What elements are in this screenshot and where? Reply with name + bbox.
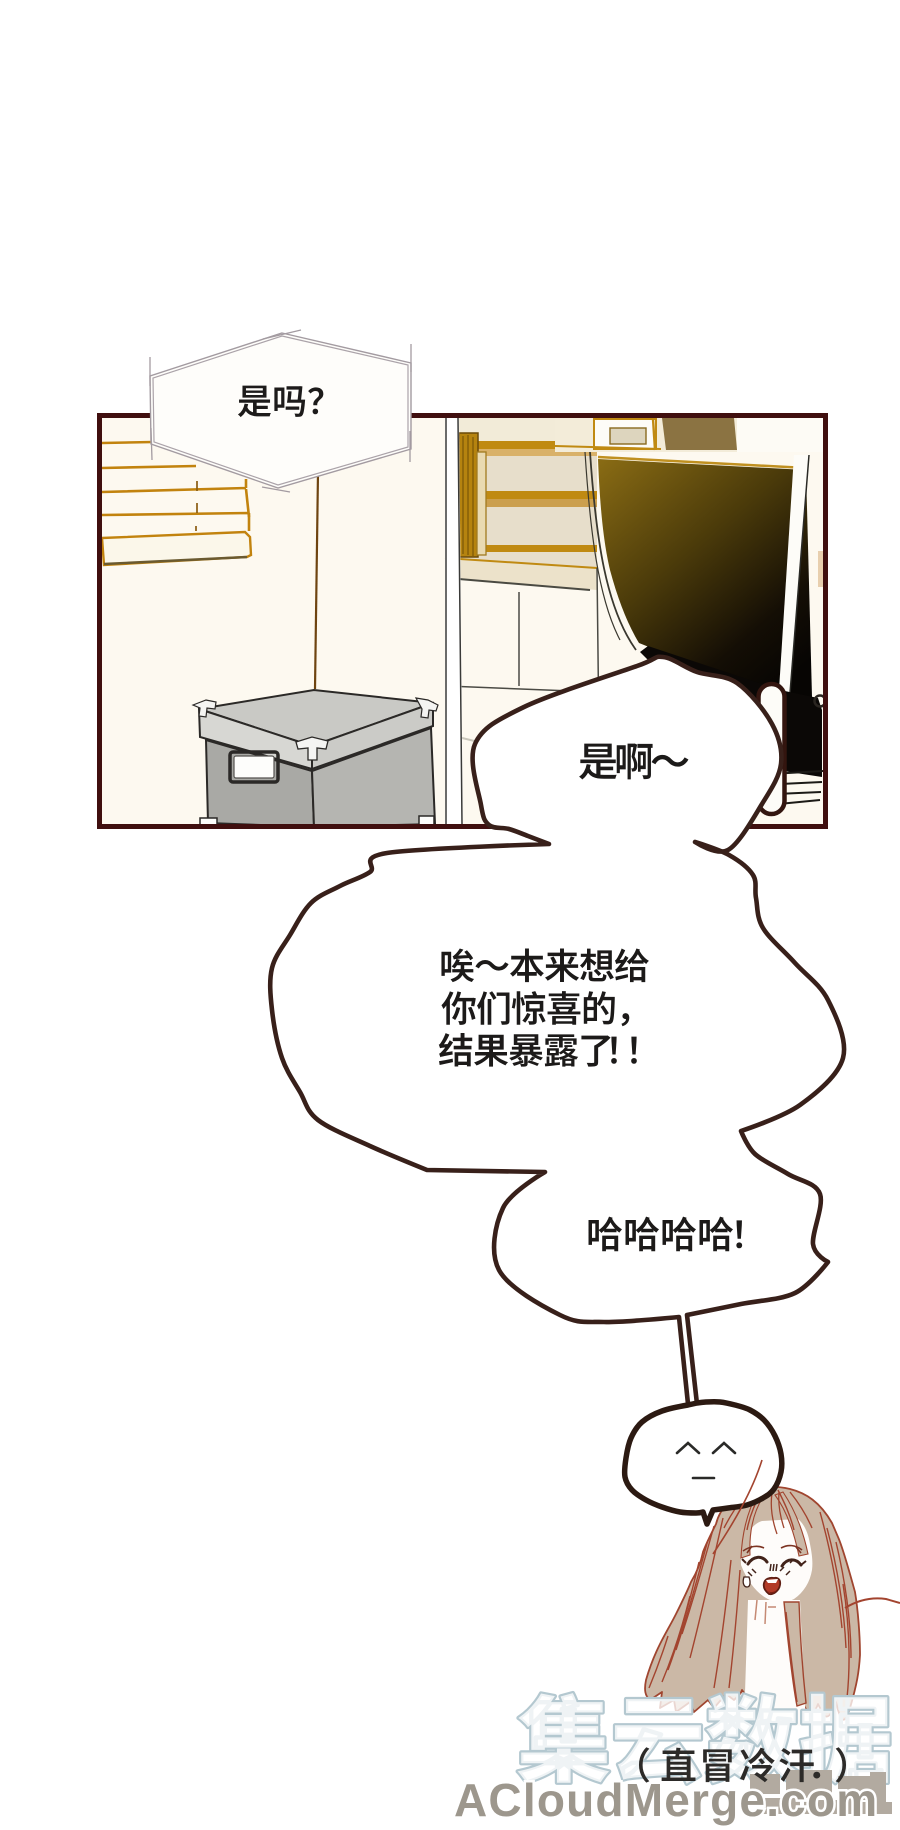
svg-text:ACloudMerge.com: ACloudMerge.com bbox=[454, 1774, 878, 1826]
